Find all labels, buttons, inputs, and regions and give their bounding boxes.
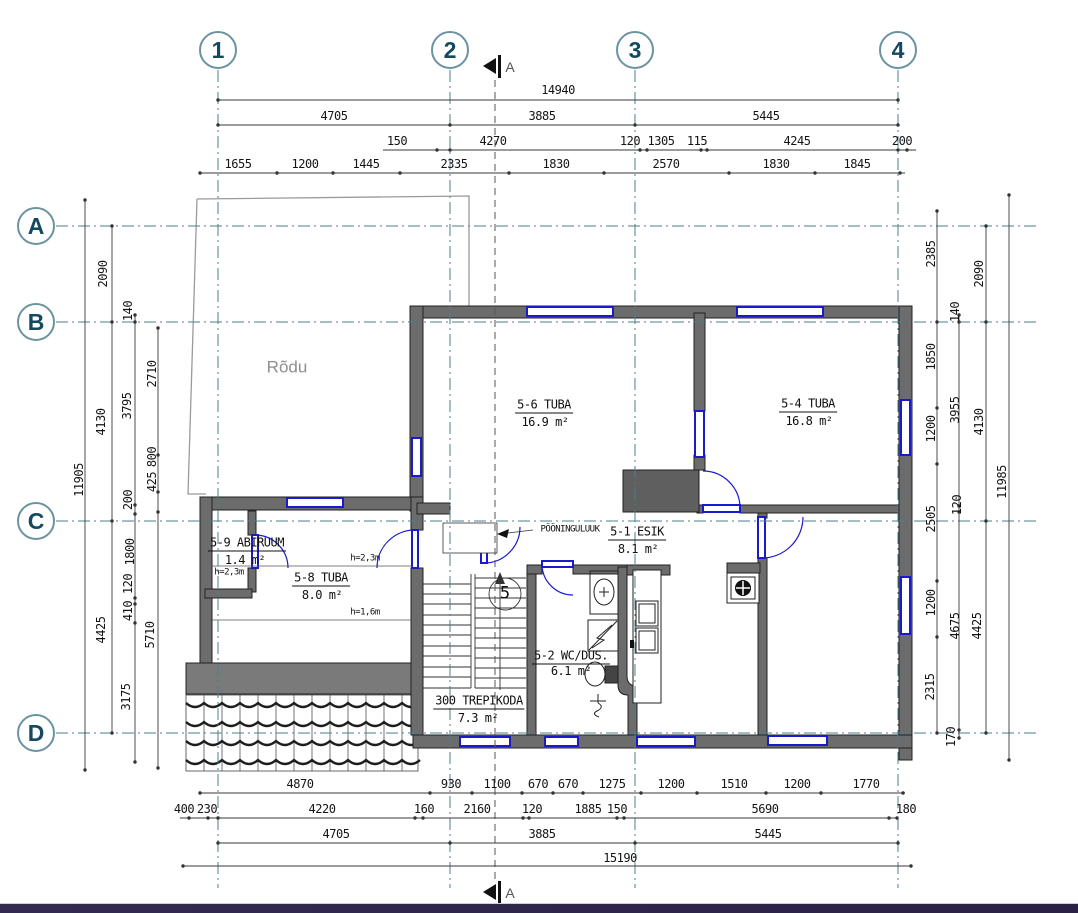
room-label: 5-1 ESIK [608,526,666,541]
grid-bubble: C [17,502,55,540]
room-label: 16.9 m² [521,416,568,428]
dim-label: 120 [951,495,963,515]
grid-bubble: 3 [616,31,654,69]
dim-label: 4705 [321,110,348,122]
dim-label: 800 [146,447,158,467]
dim-label: 670 [528,778,548,790]
dim-label: 1830 [543,158,570,170]
grid-bubble: 2 [431,31,469,69]
dim-label: 1830 [763,158,790,170]
dim-label: 200 [122,490,134,510]
dim-label: 140 [949,302,961,322]
dim-label: 14940 [541,84,575,96]
plan-note: h=1,6m [350,609,380,618]
dim-label: 1655 [225,158,252,170]
dim-label: 1845 [844,158,871,170]
bottom-window-edge [0,903,1078,913]
dim-label: 4870 [287,778,314,790]
room-label: 1.4 m² [225,554,265,566]
dim-label: 2090 [973,261,985,288]
dim-label: 3955 [949,397,961,424]
dim-label: 1510 [721,778,748,790]
dim-label: 11905 [73,463,85,497]
dim-label: 1305 [648,135,675,147]
dim-label: 400 [174,803,194,815]
dim-label: 4220 [309,803,336,815]
room-label: 5-8 TUBA [292,572,350,587]
dim-label: 5690 [752,803,779,815]
dim-label: 120 [620,135,640,147]
dim-label: 120 [522,803,542,815]
room-label: 5-4 TUBA [779,398,837,413]
plan-note: h=2,3m [214,569,244,578]
plan-note: 5 [500,586,510,603]
dim-label: 15190 [603,852,637,864]
dim-label: 4705 [323,828,350,840]
dim-label: 2505 [925,506,937,533]
dim-label: 1100 [484,778,511,790]
room-label: 8.0 m² [302,589,342,601]
dim-label: 3885 [529,110,556,122]
dim-label: 410 [122,601,134,621]
grid-bubble: D [17,714,55,752]
dim-label: 1885 [575,803,602,815]
dim-label: 5445 [755,828,782,840]
plan-note: h=2,3m [350,555,380,564]
grid-bubble: 4 [879,31,917,69]
dim-label: 1850 [925,344,937,371]
dim-label: 150 [387,135,407,147]
dim-label: 230 [197,803,217,815]
plan-note: Rõdu [267,359,308,376]
room-label: 5-6 TUBA [515,399,573,414]
grid-bubble: 1 [199,31,237,69]
dim-label: 670 [558,778,578,790]
dim-label: 930 [441,778,461,790]
dim-label: 1445 [353,158,380,170]
dim-label: 200 [892,135,912,147]
dim-label: 4675 [949,613,961,640]
section-letter: A [505,60,514,74]
dim-label: 115 [687,135,707,147]
dim-label: 4425 [971,613,983,640]
dim-label: 150 [607,803,627,815]
dim-label: 170 [945,727,957,747]
dim-label: 4130 [973,409,985,436]
dim-label: 1770 [853,778,880,790]
plan-note: PÖÖNINGULUUK [540,526,599,535]
room-label: 5-2 WC/DUS. [532,650,610,665]
dim-label: 2335 [441,158,468,170]
dim-label: 4425 [95,617,107,644]
dim-label: 1200 [925,590,937,617]
dim-label: 5710 [144,622,156,649]
dim-label: 180 [896,803,916,815]
dim-label: 425 [146,472,158,492]
dim-label: 2160 [464,803,491,815]
dim-label: 5445 [753,110,780,122]
dim-label: 4270 [480,135,507,147]
dim-label: 4130 [95,409,107,436]
room-label: 300 TREPIKODA [433,695,524,710]
dim-label: 1200 [658,778,685,790]
dim-label: 2090 [97,261,109,288]
dim-label: 1200 [784,778,811,790]
dim-label: 2315 [924,674,936,701]
grid-bubble: A [17,207,55,245]
section-letter: A [505,886,514,900]
dim-label: 2710 [146,361,158,388]
room-label: 6.1 m² [551,665,591,677]
label-layer: 1234 ABCD AA 149404705388554451504270120… [0,0,1078,913]
dim-label: 4245 [784,135,811,147]
grid-bubble: B [17,303,55,341]
room-label: 8.1 m² [618,543,658,555]
dim-label: 1200 [925,416,937,443]
dim-label: 120 [122,574,134,594]
floorplan-sheet: 1234 ABCD AA 149404705388554451504270120… [0,0,1078,913]
dim-label: 2385 [925,241,937,268]
dim-label: 11985 [996,465,1008,499]
dim-label: 160 [414,803,434,815]
dim-label: 3175 [120,684,132,711]
dim-label: 1800 [124,539,136,566]
room-label: 16.8 m² [785,415,832,427]
dim-label: 3885 [529,828,556,840]
dim-label: 3795 [121,393,133,420]
dim-label: 1200 [292,158,319,170]
room-label: 5-9 ABIRUUM [208,537,286,552]
room-label: 7.3 m² [458,712,498,724]
dim-label: 140 [122,301,134,321]
dim-label: 1275 [599,778,626,790]
dim-label: 2570 [653,158,680,170]
